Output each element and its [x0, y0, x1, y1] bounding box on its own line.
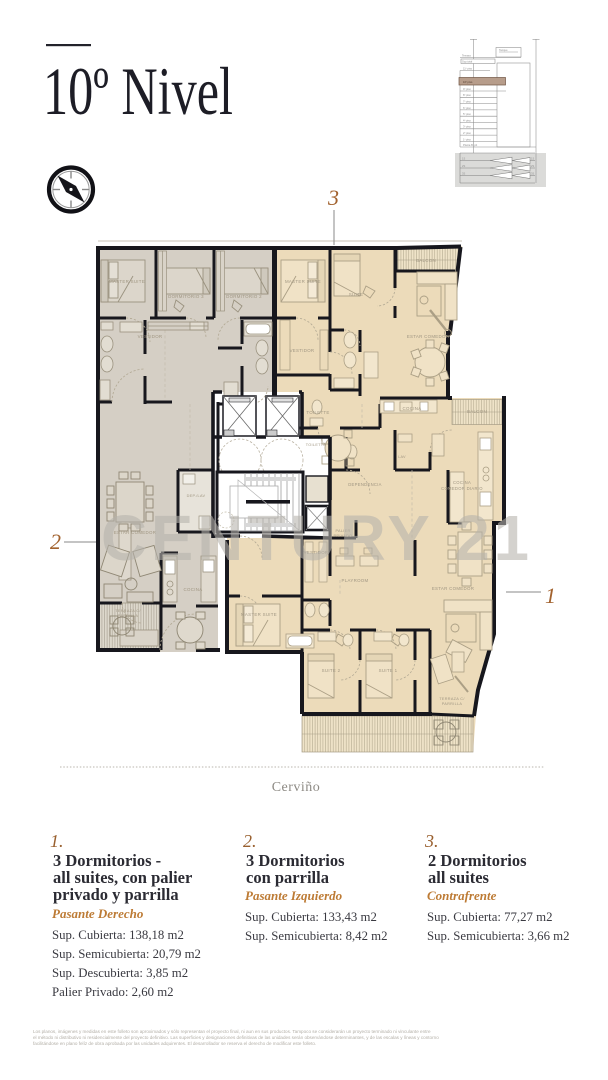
- svg-text:TOILETTE: TOILETTE: [306, 410, 329, 415]
- svg-text:all suites: all suites: [428, 868, 490, 887]
- svg-text:Sup. Semicubierta: 8,42 m2: Sup. Semicubierta: 8,42 m2: [245, 929, 388, 943]
- svg-text:1: 1: [545, 583, 556, 608]
- svg-text:Terraza: Terraza: [462, 54, 471, 58]
- svg-text:MASTER SUITE: MASTER SUITE: [241, 612, 277, 617]
- svg-text:6º piso: 6º piso: [463, 106, 471, 110]
- svg-text:4º piso: 4º piso: [463, 118, 471, 122]
- svg-text:el método ni distributivo ni r: el método ni distributivo ni residencial…: [33, 1035, 439, 1040]
- svg-text:3º piso: 3º piso: [463, 125, 471, 129]
- svg-text:3: 3: [327, 185, 339, 210]
- svg-text:Sup. Cubierta: 138,18 m2: Sup. Cubierta: 138,18 m2: [52, 928, 184, 942]
- svg-text:11º piso: 11º piso: [463, 67, 473, 71]
- svg-text:Cerviño: Cerviño: [272, 780, 321, 795]
- svg-text:TERRAZA C/: TERRAZA C/: [115, 609, 141, 613]
- svg-text:VESTIDOR: VESTIDOR: [138, 334, 163, 339]
- svg-text:COCINA: COCINA: [184, 587, 203, 592]
- svg-text:Sup. Semicubierta: 20,79 m2: Sup. Semicubierta: 20,79 m2: [52, 947, 201, 961]
- svg-text:Pasante Derecho: Pasante Derecho: [52, 906, 144, 921]
- svg-text:8º piso: 8º piso: [463, 93, 471, 97]
- svg-text:Sup. Cubierta: 77,27 m2: Sup. Cubierta: 77,27 m2: [427, 910, 552, 924]
- svg-text:TOILETTE: TOILETTE: [306, 443, 327, 447]
- svg-text:PLAYROOM: PLAYROOM: [342, 578, 369, 583]
- svg-text:DORMITORIO 2: DORMITORIO 2: [226, 294, 262, 299]
- svg-text:SUITE 1: SUITE 1: [379, 668, 398, 673]
- svg-text:COMEDOR DIARIO: COMEDOR DIARIO: [441, 486, 483, 491]
- svg-text:MASTER SUITE: MASTER SUITE: [109, 279, 145, 284]
- svg-text:LAV: LAV: [398, 455, 406, 459]
- svg-text:TERRAZA C/: TERRAZA C/: [439, 697, 465, 701]
- svg-text:1.: 1.: [50, 831, 64, 851]
- svg-text:2: 2: [50, 529, 61, 554]
- svg-text:5º piso: 5º piso: [463, 112, 471, 116]
- svg-text:BALCON: BALCON: [467, 409, 487, 414]
- svg-text:1º piso: 1º piso: [463, 137, 471, 141]
- svg-text:Tanque: Tanque: [499, 48, 508, 52]
- svg-text:DORMITORIO 3: DORMITORIO 3: [168, 294, 204, 299]
- svg-text:10º Nivel: 10º Nivel: [43, 53, 233, 129]
- svg-text:Pasante Izquierdo: Pasante Izquierdo: [245, 888, 343, 903]
- svg-text:3S: 3S: [531, 172, 534, 176]
- svg-text:Los planos, imágenes y medidas: Los planos, imágenes y medidas en este f…: [33, 1029, 431, 1034]
- svg-text:BALCON: BALCON: [416, 258, 436, 263]
- svg-text:DEPENDENCIA: DEPENDENCIA: [348, 482, 382, 487]
- svg-text:Sup.total: Sup.total: [462, 60, 473, 64]
- svg-text:2S: 2S: [462, 164, 465, 168]
- svg-text:ESTAR COMEDOR: ESTAR COMEDOR: [407, 334, 449, 339]
- svg-text:2S: 2S: [531, 164, 534, 168]
- svg-text:SUITE: SUITE: [349, 292, 363, 297]
- svg-text:3.: 3.: [424, 831, 439, 851]
- svg-text:CENTURY 21: CENTURY 21: [101, 502, 533, 574]
- svg-text:Palier Privado: 2,60 m2: Palier Privado: 2,60 m2: [52, 985, 174, 999]
- svg-text:privado y parrilla: privado y parrilla: [53, 885, 179, 904]
- svg-text:ESTAR COMEDOR: ESTAR COMEDOR: [432, 586, 474, 591]
- svg-text:1S: 1S: [462, 157, 465, 161]
- svg-text:PARRILLA: PARRILLA: [118, 614, 139, 618]
- svg-text:DEP./LAV: DEP./LAV: [187, 494, 206, 498]
- svg-text:Sup. Descubierta: 3,85 m2: Sup. Descubierta: 3,85 m2: [52, 966, 188, 980]
- svg-text:Sup. Cubierta: 133,43 m2: Sup. Cubierta: 133,43 m2: [245, 910, 377, 924]
- svg-text:1S: 1S: [531, 157, 534, 161]
- svg-text:Contrafrente: Contrafrente: [427, 888, 497, 903]
- svg-text:VESTIDOR: VESTIDOR: [290, 348, 315, 353]
- svg-text:con parrilla: con parrilla: [246, 868, 329, 887]
- svg-text:PARRILLA: PARRILLA: [442, 702, 463, 706]
- svg-text:MASTER SUITE: MASTER SUITE: [285, 279, 321, 284]
- svg-text:2.: 2.: [243, 831, 257, 851]
- svg-text:COCINA: COCINA: [403, 406, 422, 411]
- svg-text:10º piso: 10º piso: [463, 80, 473, 84]
- svg-text:3S: 3S: [462, 172, 465, 176]
- svg-text:7º piso: 7º piso: [463, 100, 471, 104]
- svg-text:2º piso: 2º piso: [463, 131, 471, 135]
- svg-text:SUITE 2: SUITE 2: [322, 668, 341, 673]
- svg-text:COCINA: COCINA: [453, 480, 471, 485]
- svg-text:facilitándose en plano felíz d: facilitándose en plano felíz de obra apr…: [33, 1041, 316, 1046]
- svg-text:Planta B. pb: Planta B. pb: [463, 143, 478, 147]
- svg-text:9º piso: 9º piso: [463, 87, 471, 91]
- svg-text:Sup. Semicubierta: 3,66 m2: Sup. Semicubierta: 3,66 m2: [427, 929, 570, 943]
